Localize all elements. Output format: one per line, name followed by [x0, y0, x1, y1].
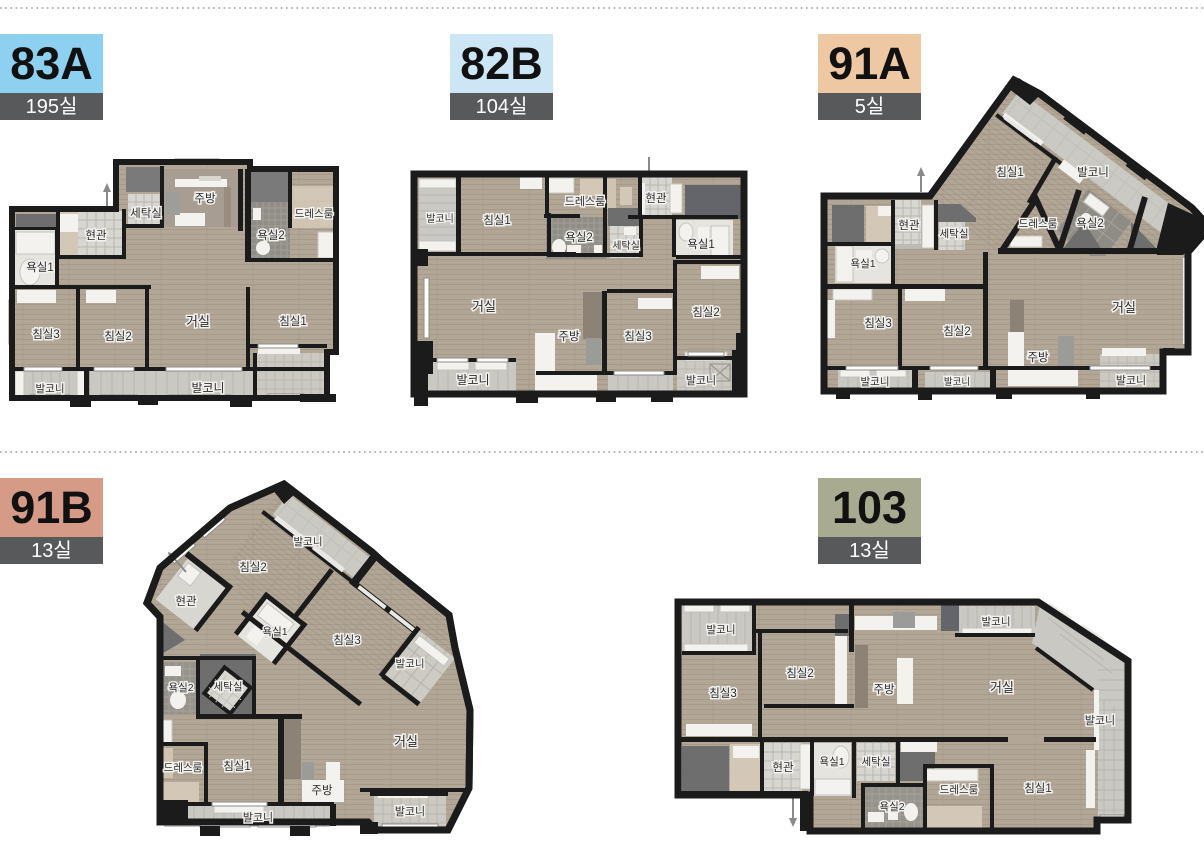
svg-text:발코니: 발코니	[395, 805, 425, 818]
svg-text:발코니: 발코니	[426, 213, 454, 225]
svg-text:104실: 104실	[476, 95, 528, 118]
svg-text:발코니: 발코니	[982, 616, 1011, 628]
svg-text:드레스룸: 드레스룸	[164, 762, 203, 774]
svg-text:현관: 현관	[898, 219, 920, 232]
svg-text:현관: 현관	[175, 595, 197, 608]
svg-text:발코니: 발코니	[243, 811, 273, 824]
svg-text:거실: 거실	[394, 734, 418, 749]
svg-text:세탁실: 세탁실	[214, 681, 243, 693]
svg-text:욕실2: 욕실2	[565, 231, 593, 244]
svg-text:세탁실: 세탁실	[612, 240, 640, 252]
svg-text:세탁실: 세탁실	[130, 207, 162, 220]
svg-text:욕실1: 욕실1	[850, 258, 875, 270]
svg-text:침실1: 침실1	[1024, 782, 1052, 795]
svg-text:발코니: 발코니	[396, 658, 425, 670]
svg-text:현관: 현관	[772, 761, 794, 774]
svg-text:발코니: 발코니	[36, 383, 65, 395]
svg-text:발코니: 발코니	[707, 624, 736, 636]
svg-text:침실2: 침실2	[692, 306, 720, 319]
svg-text:91B: 91B	[10, 482, 93, 533]
svg-text:발코니: 발코니	[456, 373, 489, 387]
svg-text:83A: 83A	[10, 38, 93, 89]
svg-text:욕실2: 욕실2	[1076, 217, 1104, 230]
svg-text:13실: 13실	[849, 539, 890, 562]
svg-text:주방: 주방	[558, 330, 580, 343]
svg-text:욕실2: 욕실2	[879, 801, 904, 813]
svg-text:드레스룸: 드레스룸	[1019, 218, 1058, 230]
svg-text:발코니: 발코니	[686, 374, 716, 387]
svg-text:욕실1: 욕실1	[687, 238, 715, 251]
svg-text:침실3: 침실3	[709, 687, 737, 700]
svg-text:침실3: 침실3	[333, 634, 361, 647]
svg-text:침실1: 침실1	[483, 214, 511, 227]
svg-text:드레스룸: 드레스룸	[295, 208, 334, 220]
svg-text:발코니: 발코니	[1077, 166, 1109, 179]
svg-text:침실1: 침실1	[996, 166, 1024, 179]
svg-text:욕실1: 욕실1	[262, 626, 287, 638]
svg-text:주방: 주방	[1027, 351, 1049, 364]
svg-text:발코니: 발코니	[294, 536, 323, 548]
svg-text:발코니: 발코니	[1085, 714, 1115, 727]
svg-text:거실: 거실	[1112, 300, 1136, 315]
svg-text:발코니: 발코니	[1116, 374, 1146, 387]
svg-text:103: 103	[832, 482, 907, 533]
svg-text:욕실1: 욕실1	[819, 756, 844, 768]
svg-text:침실2: 침실2	[104, 330, 132, 343]
svg-text:거실: 거실	[186, 314, 210, 329]
svg-text:욕실2: 욕실2	[257, 229, 285, 242]
svg-text:욕실1: 욕실1	[26, 261, 54, 274]
svg-text:거실: 거실	[472, 299, 496, 314]
svg-text:주방: 주방	[311, 784, 333, 797]
svg-text:세탁실: 세탁실	[862, 756, 891, 768]
svg-text:침실2: 침실2	[239, 561, 267, 574]
svg-text:침실2: 침실2	[786, 667, 814, 680]
svg-text:침실1: 침실1	[279, 315, 307, 328]
svg-text:거실: 거실	[990, 680, 1014, 695]
svg-text:발코니: 발코니	[191, 381, 224, 395]
svg-text:드레스룸: 드레스룸	[565, 195, 605, 208]
svg-text:침실3: 침실3	[32, 328, 60, 341]
svg-text:주방: 주방	[873, 683, 895, 696]
svg-text:5실: 5실	[855, 95, 885, 118]
svg-text:195실: 195실	[26, 95, 78, 118]
svg-text:침실1: 침실1	[223, 760, 251, 773]
svg-text:82B: 82B	[460, 38, 543, 89]
svg-text:발코니: 발코니	[944, 377, 970, 388]
svg-text:침실2: 침실2	[943, 325, 971, 338]
svg-text:침실3: 침실3	[864, 317, 892, 330]
svg-text:드레스룸: 드레스룸	[940, 784, 979, 796]
svg-text:욕실2: 욕실2	[168, 682, 193, 694]
svg-text:주방: 주방	[194, 192, 216, 205]
svg-text:현관: 현관	[645, 192, 667, 205]
svg-text:발코니: 발코니	[861, 376, 890, 388]
svg-text:세탁실: 세탁실	[940, 228, 969, 240]
svg-text:현관: 현관	[85, 229, 107, 242]
svg-text:13실: 13실	[31, 539, 72, 562]
svg-text:침실3: 침실3	[624, 330, 652, 343]
svg-text:91A: 91A	[828, 38, 911, 89]
